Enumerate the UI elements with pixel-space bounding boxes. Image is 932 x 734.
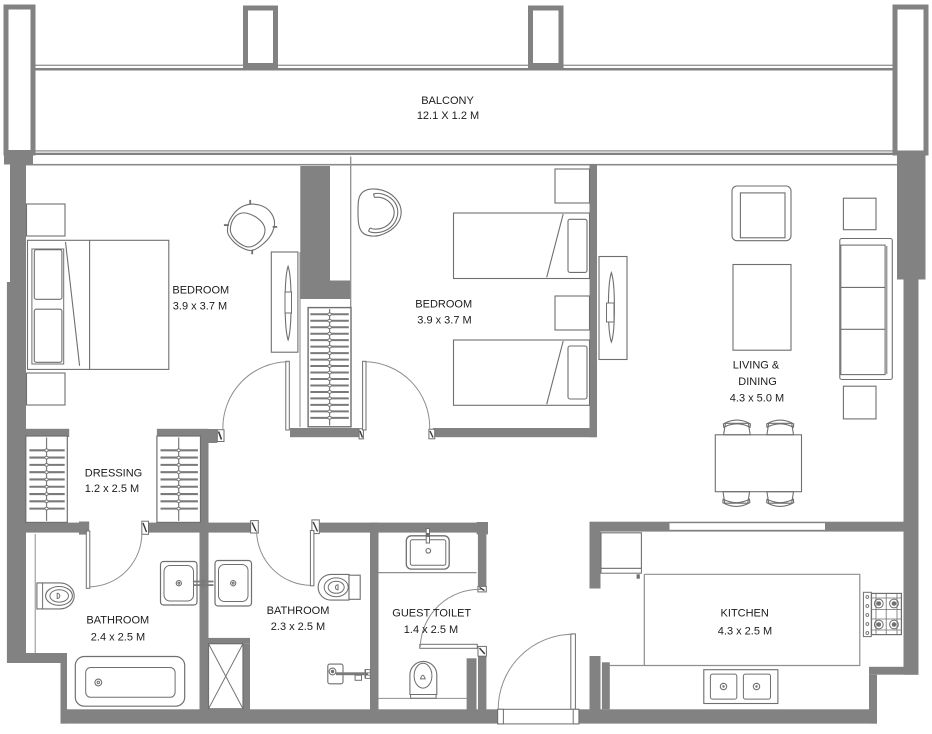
svg-text:DINING: DINING (738, 376, 777, 388)
svg-text:2.4 x 2.5 M: 2.4 x 2.5 M (91, 631, 145, 643)
svg-text:4.3 x 2.5 M: 4.3 x 2.5 M (718, 626, 772, 638)
svg-text:KITCHEN: KITCHEN (721, 608, 769, 620)
svg-text:1.4 x 2.5 M: 1.4 x 2.5 M (404, 624, 458, 636)
svg-text:12.1 X 1.2 M: 12.1 X 1.2 M (417, 110, 479, 122)
svg-text:BEDROOM: BEDROOM (172, 284, 229, 296)
svg-text:BATHROOM: BATHROOM (267, 605, 330, 617)
svg-text:BALCONY: BALCONY (421, 95, 474, 107)
svg-text:1.2 x 2.5 M: 1.2 x 2.5 M (85, 483, 139, 495)
svg-text:LIVING &: LIVING & (733, 360, 780, 372)
svg-text:BEDROOM: BEDROOM (415, 298, 472, 310)
svg-text:DRESSING: DRESSING (85, 467, 142, 479)
svg-text:BATHROOM: BATHROOM (86, 615, 149, 627)
svg-text:GUEST TOILET: GUEST TOILET (392, 608, 471, 620)
svg-text:4.3 x 5.0 M: 4.3 x 5.0 M (730, 392, 784, 404)
svg-text:3.9 x 3.7 M: 3.9 x 3.7 M (417, 314, 471, 326)
svg-text:2.3 x 2.5 M: 2.3 x 2.5 M (271, 621, 325, 633)
svg-text:3.9 x 3.7 M: 3.9 x 3.7 M (173, 300, 227, 312)
